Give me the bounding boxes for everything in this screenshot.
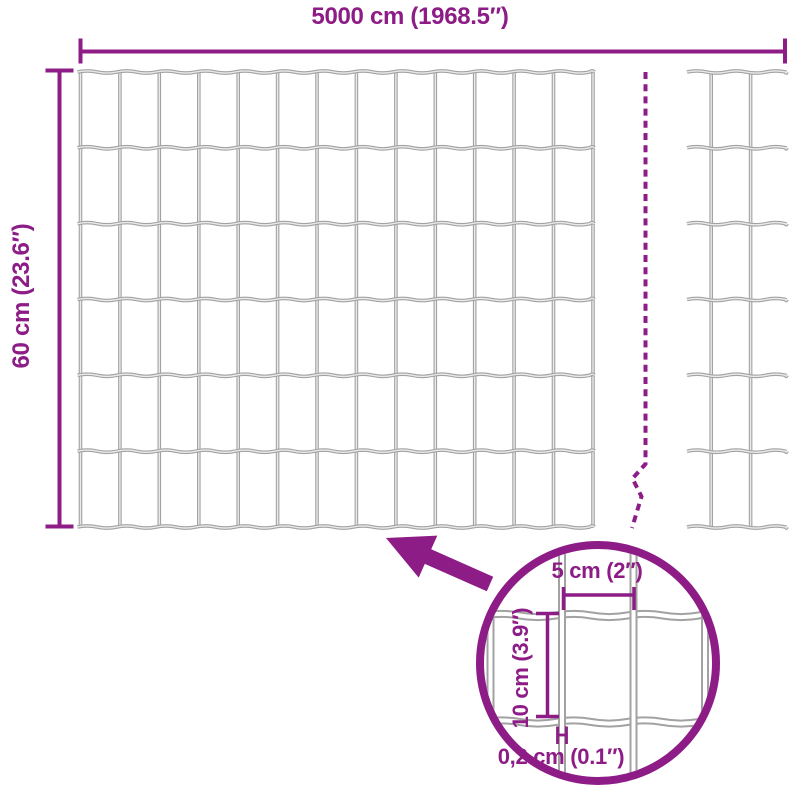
width-dimension-line: [81, 39, 786, 64]
fence-mesh-right-section: [687, 71, 787, 528]
fence-mesh-main: [78, 71, 595, 528]
total-height-label: 60 cm (23.6″): [7, 146, 35, 446]
break-line-icon: [632, 72, 646, 528]
fence-dimension-diagram: 5000 cm (1968.5″) 60 cm (23.6″) 5 cm (2″…: [0, 0, 800, 800]
total-width-label: 5000 cm (1968.5″): [235, 2, 585, 32]
diagram-canvas: [0, 0, 800, 800]
wire-thickness-label: 0,2 cm (0.1″): [441, 743, 681, 770]
height-dimension-line: [46, 71, 74, 527]
arrow-icon: [386, 536, 493, 592]
